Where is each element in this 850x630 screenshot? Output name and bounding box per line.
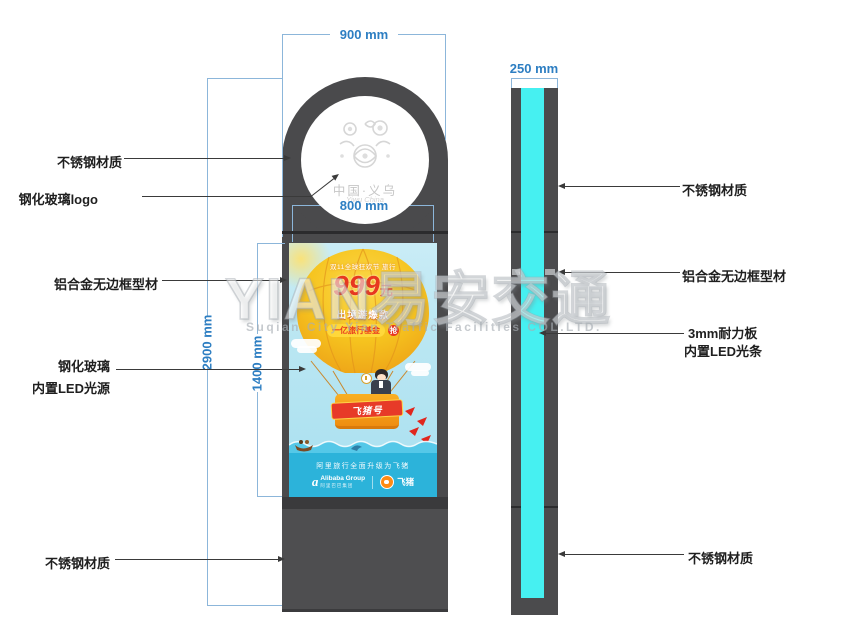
cloud-icon <box>297 346 317 353</box>
cloud-icon <box>411 370 429 376</box>
leader-line <box>115 559 278 560</box>
side-back-skin <box>544 88 558 615</box>
balloon-basket: 飞猪号 <box>335 394 399 429</box>
side-seam <box>511 231 521 233</box>
leader-line <box>142 196 311 197</box>
logo-divider <box>372 476 373 489</box>
poster-logo-row: a Alibaba Group 阿里巴巴集团 飞猪 <box>289 474 437 490</box>
front-base-edge <box>282 609 448 612</box>
alibaba-cn: 阿里巴巴集团 <box>320 484 365 489</box>
figure-shirt <box>379 381 383 388</box>
poster-slogan: 阿里旅行全面升级为飞猪 <box>289 461 437 471</box>
dim-1400-tick-top <box>257 243 285 244</box>
label-steel-top-side: 不锈钢材质 <box>682 180 747 199</box>
poster-tagline: 出境游爆款 <box>289 307 437 321</box>
label-glass-led-2: 内置LED光源 <box>32 378 110 397</box>
front-lower-frame <box>282 497 448 509</box>
label-steel-bottom-front: 不锈钢材质 <box>45 553 110 572</box>
label-alu-frame-side: 铝合金无边框型材 <box>682 266 786 285</box>
poster-text-block: 双11全球狂欢节 旅行 999元 出境游爆款 一亿旅行基金 抢 <box>289 261 437 337</box>
dim-250-tick <box>511 78 512 88</box>
arrowhead <box>280 277 287 283</box>
poster-screen: 双11全球狂欢节 旅行 999元 出境游爆款 一亿旅行基金 抢 飞猪号 <box>289 243 437 497</box>
arrowhead <box>539 330 546 336</box>
basket-banner: 飞猪号 <box>331 399 404 420</box>
fliggy-pig-icon <box>380 475 394 489</box>
alu-frame-tab <box>545 269 555 275</box>
alibaba-logo-icon: a <box>312 474 319 490</box>
side-base <box>511 598 558 615</box>
dim-1400-tick-bottom <box>257 496 282 497</box>
dim-800-label: 800 mm <box>329 198 399 213</box>
leader-line <box>162 280 280 281</box>
yiwu-emblem-icon <box>330 116 400 178</box>
dim-250-tick <box>557 78 558 88</box>
arrowhead <box>284 155 291 161</box>
label-glass-led-1: 钢化玻璃 <box>58 356 110 375</box>
grab-badge: 抢 <box>388 325 399 336</box>
dim-1400-line <box>257 392 258 496</box>
travel-fund-pill: 一亿旅行基金 <box>327 324 385 337</box>
dim-800-ext-left <box>292 205 293 242</box>
dim-2900-line <box>207 368 208 606</box>
side-seam <box>511 506 521 508</box>
dim-250-line <box>511 78 558 79</box>
alu-frame-tab <box>512 269 520 275</box>
fliggy-cn: 飞猪 <box>397 476 414 488</box>
poster-footer-band: 阿里旅行全面升级为飞猪 a Alibaba Group 阿里巴巴集团 飞猪 <box>289 453 437 497</box>
dim-1400-line <box>257 243 258 334</box>
side-seam <box>544 506 558 508</box>
side-front-skin <box>511 88 521 615</box>
dim-900-ext-right <box>445 34 446 140</box>
arrowhead <box>558 183 565 189</box>
front-neck-seam <box>282 231 448 234</box>
arrowhead <box>558 269 565 275</box>
alibaba-en: Alibaba Group <box>320 476 365 483</box>
front-base <box>282 509 448 609</box>
leader-line <box>124 158 284 159</box>
leader-line <box>116 369 299 370</box>
fliggy-logo: 飞猪 <box>380 475 414 489</box>
dim-1400-label: 1400 mm <box>250 329 265 399</box>
price-number: 999 <box>333 270 380 301</box>
dim-250-label: 250 mm <box>499 61 569 76</box>
poster-price: 999元 <box>289 271 437 306</box>
arrowhead <box>558 551 565 557</box>
label-alu-frame-front: 铝合金无边框型材 <box>54 274 158 293</box>
signage-spec-sheet: 中国·义乌 Yiwu China <box>0 0 850 630</box>
label-glass-logo: 钢化玻璃logo <box>19 189 98 208</box>
label-board-led-2: 内置LED光条 <box>684 341 762 360</box>
side-seam <box>544 231 558 233</box>
dim-2900-label: 2900 mm <box>200 308 215 378</box>
poster-pill-row: 一亿旅行基金 抢 <box>289 324 437 337</box>
alibaba-logo: a Alibaba Group 阿里巴巴集团 <box>312 474 365 490</box>
dim-900-label: 900 mm <box>329 27 399 42</box>
side-led-panel <box>521 88 544 598</box>
arrowhead <box>278 556 285 562</box>
leader-line <box>546 333 684 334</box>
leader-line <box>565 186 680 187</box>
label-steel-bottom-side: 不锈钢材质 <box>688 548 753 567</box>
label-steel-top: 不锈钢材质 <box>57 152 122 171</box>
arrowhead <box>299 366 306 372</box>
label-board-led-1: 3mm耐力板 <box>688 323 757 342</box>
dim-900-line <box>282 34 330 35</box>
dim-900-line <box>398 34 446 35</box>
price-unit: 元 <box>380 283 393 298</box>
dim-800-ext-right <box>433 205 434 242</box>
dim-2900-tick-top <box>207 78 283 79</box>
leader-line <box>565 554 684 555</box>
dim-900-ext-left <box>282 34 283 237</box>
leader-line <box>565 272 680 273</box>
